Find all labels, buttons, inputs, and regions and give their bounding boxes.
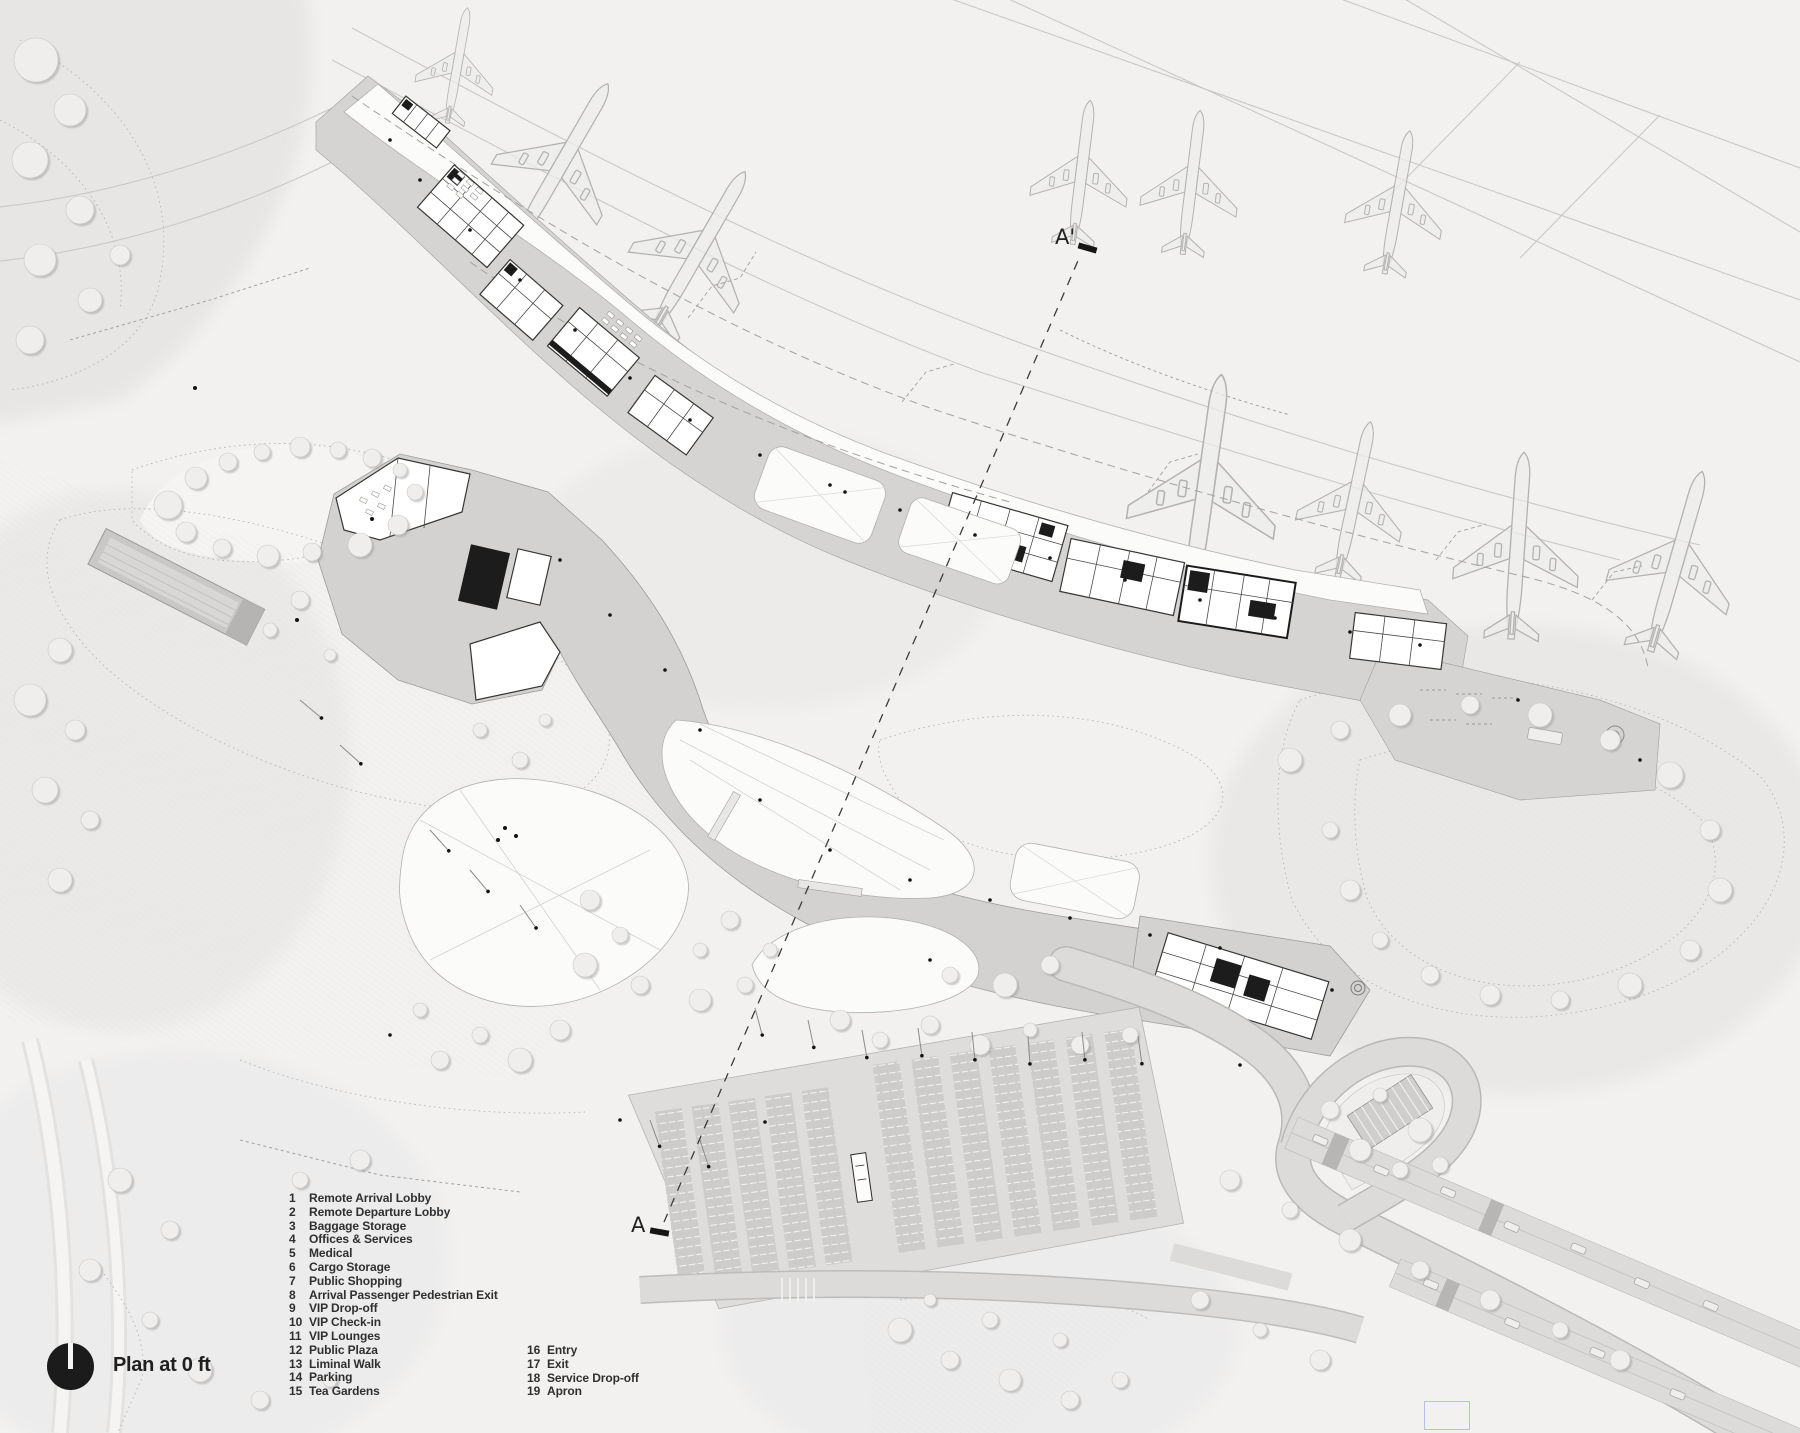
legend-item: 19Apron	[527, 1385, 639, 1399]
legend-item: 17Exit	[527, 1358, 639, 1372]
legend-item: 18Service Drop-off	[527, 1372, 639, 1386]
legend-column-1: 1Remote Arrival Lobby 2Remote Departure …	[289, 1192, 498, 1399]
legend-item: 1Remote Arrival Lobby	[289, 1192, 498, 1206]
legend-column-2: 16Entry 17Exit 18Service Drop-off 19Apro…	[527, 1344, 639, 1399]
legend-item: 15Tea Gardens	[289, 1385, 498, 1399]
legend-item: 10VIP Check-in	[289, 1316, 498, 1330]
airplane-icon	[1337, 122, 1458, 282]
airplane-icon	[1285, 411, 1422, 589]
legend-item: 9VIP Drop-off	[289, 1302, 498, 1316]
legend-item: 4Offices & Services	[289, 1233, 498, 1247]
airplane-icon	[1135, 104, 1249, 260]
legend-item: 14Parking	[289, 1371, 498, 1385]
site-plan-page: Plan at 0 ft A' A 1Remote Arrival Lobby …	[0, 0, 1800, 1433]
legend-item: 6Cargo Storage	[289, 1261, 498, 1275]
site-plan-drawing	[0, 0, 1800, 1433]
legend-item: 12Public Plaza	[289, 1344, 498, 1358]
legend-item: 2Remote Departure Lobby	[289, 1206, 498, 1220]
legend-item: 13Liminal Walk	[289, 1358, 498, 1372]
airplane-icon	[1025, 94, 1139, 250]
legend-item: 8Arrival Passenger Pedestrian Exit	[289, 1289, 498, 1303]
section-marker-a: A	[631, 1213, 645, 1237]
selection-rectangle	[1424, 1401, 1470, 1430]
north-arrow-icon	[47, 1343, 94, 1390]
legend-item: 5Medical	[289, 1247, 498, 1261]
plan-title: Plan at 0 ft	[113, 1354, 211, 1377]
section-marker-a-prime: A'	[1055, 225, 1075, 249]
legend-item: 3Baggage Storage	[289, 1220, 498, 1234]
legend-item: 11VIP Lounges	[289, 1330, 498, 1344]
deck-plaza	[1007, 840, 1142, 921]
legend-item: 7Public Shopping	[289, 1275, 498, 1289]
legend-item: 16Entry	[527, 1344, 639, 1358]
